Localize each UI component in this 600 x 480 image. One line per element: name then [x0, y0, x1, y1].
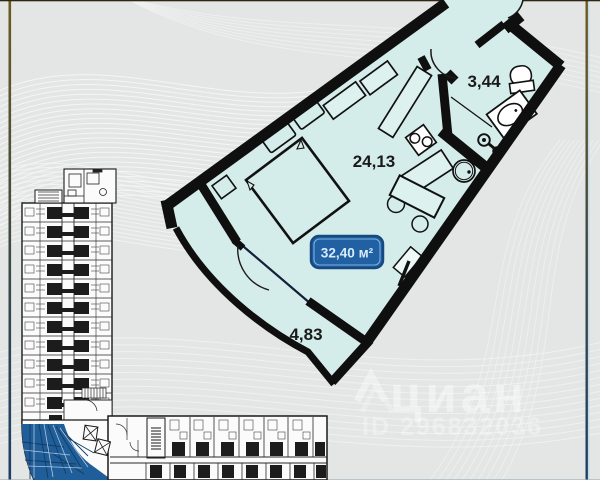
- svg-text:24,13: 24,13: [353, 152, 396, 171]
- svg-text:4,83: 4,83: [289, 325, 322, 344]
- svg-text:ID 296832036: ID 296832036: [362, 413, 543, 441]
- svg-text:32,40 м²: 32,40 м²: [321, 246, 374, 261]
- svg-text:3,44: 3,44: [467, 72, 501, 91]
